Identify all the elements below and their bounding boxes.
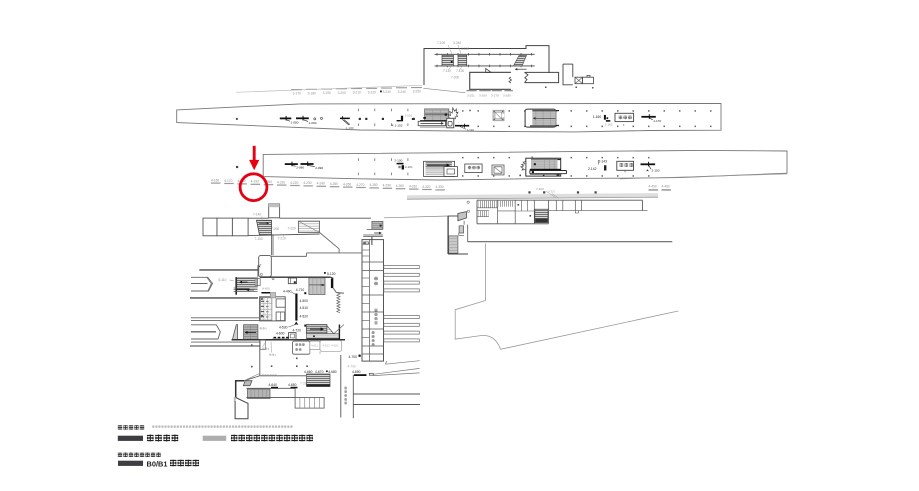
svg-text:4-260: 4-260 — [343, 182, 351, 186]
svg-text:4-160: 4-160 — [211, 178, 219, 182]
svg-text:3-190: 3-190 — [323, 91, 331, 95]
svg-text:1: 1 — [275, 353, 277, 357]
svg-text:3-230: 3-230 — [383, 90, 391, 94]
svg-text:4-700: 4-700 — [348, 364, 356, 368]
svg-text:5-110: 5-110 — [219, 278, 227, 282]
svg-text:1-170: 1-170 — [653, 119, 661, 123]
svg-text:2-142: 2-142 — [588, 167, 597, 171]
svg-text:4-510: 4-510 — [300, 306, 309, 310]
svg-text:4-330: 4-330 — [435, 185, 443, 189]
svg-text:4-290: 4-290 — [383, 184, 391, 188]
svg-text:4-210: 4-210 — [277, 180, 285, 184]
svg-text:4-530: 4-530 — [279, 325, 288, 329]
svg-text:7-110: 7-110 — [443, 69, 451, 73]
svg-text:3-240: 3-240 — [398, 90, 406, 94]
svg-text:3-251: 3-251 — [467, 93, 475, 97]
svg-text:7-210: 7-210 — [278, 236, 286, 240]
svg-text:3-270: 3-270 — [491, 93, 499, 97]
svg-text:1-100: 1-100 — [346, 126, 354, 130]
svg-text:4-250: 4-250 — [330, 182, 338, 186]
svg-text:7-130: 7-130 — [456, 69, 464, 73]
svg-text:4-710: 4-710 — [296, 288, 305, 292]
svg-text:4-500: 4-500 — [300, 299, 309, 303]
svg-text:4-270: 4-270 — [356, 183, 364, 187]
svg-text:(4-485): (4-485) — [262, 288, 270, 291]
svg-text:2-100: 2-100 — [394, 158, 402, 162]
svg-text:5-120: 5-120 — [327, 272, 336, 276]
svg-text:B0/B1: B0/B1 — [147, 459, 168, 468]
svg-text:4-450: 4-450 — [649, 185, 657, 189]
svg-text:4-640: 4-640 — [269, 383, 278, 387]
svg-text:2-150: 2-150 — [652, 169, 660, 173]
svg-text:1-110: 1-110 — [467, 128, 475, 132]
svg-text:3-200: 3-200 — [338, 91, 346, 95]
svg-text:1-090: 1-090 — [309, 121, 317, 125]
svg-text:4-690: 4-690 — [352, 370, 361, 374]
svg-text:7-300: 7-300 — [536, 187, 544, 191]
svg-text:4-240: 4-240 — [317, 182, 325, 186]
svg-text:3-240: 3-240 — [453, 41, 461, 45]
svg-text:3-210: 3-210 — [353, 91, 361, 95]
svg-text:7-200: 7-200 — [271, 227, 279, 231]
svg-text:4-460: 4-460 — [662, 185, 670, 189]
svg-text:4-170: 4-170 — [224, 179, 232, 183]
svg-text:4-490: 4-490 — [283, 290, 292, 294]
svg-text:1-102: 1-102 — [395, 124, 403, 128]
svg-text:4-230: 4-230 — [303, 181, 311, 185]
svg-text:3-280: 3-280 — [503, 93, 511, 97]
svg-text:4: 4 — [265, 326, 267, 330]
svg-text:1-101: 1-101 — [405, 113, 413, 117]
svg-text:7-150: 7-150 — [255, 237, 263, 241]
svg-text:7-140: 7-140 — [253, 213, 261, 217]
svg-text:3-120: 3-120 — [461, 47, 469, 51]
svg-text:3-180: 3-180 — [308, 91, 316, 95]
svg-text:3: 3 — [268, 347, 270, 351]
svg-text:3-260: 3-260 — [479, 93, 487, 97]
svg-text:2-090: 2-090 — [315, 166, 323, 170]
svg-text:4-600: 4-600 — [276, 332, 285, 336]
svg-text:3-220: 3-220 — [368, 90, 376, 94]
svg-text:4-660: 4-660 — [304, 370, 313, 374]
svg-text:1-162: 1-162 — [605, 122, 613, 126]
svg-text:2-143: 2-143 — [599, 160, 608, 164]
svg-text:2-080: 2-080 — [296, 166, 304, 170]
svg-text:4-700: 4-700 — [349, 355, 358, 359]
svg-text:4-670: 4-670 — [315, 370, 324, 374]
svg-text:4-650: 4-650 — [288, 383, 297, 387]
svg-text:7-100: 7-100 — [437, 41, 445, 45]
svg-text:7-220: 7-220 — [288, 226, 296, 230]
svg-text:3-170: 3-170 — [293, 92, 301, 96]
svg-text:4-620: 4-620 — [331, 343, 339, 347]
svg-text:4-300: 4-300 — [396, 184, 404, 188]
svg-text:4-220: 4-220 — [290, 181, 298, 185]
svg-text:(A-04): (A-04) — [277, 374, 283, 377]
svg-text:1-160: 1-160 — [593, 115, 602, 119]
svg-text:4-720: 4-720 — [293, 328, 302, 332]
svg-text:2-101: 2-101 — [405, 165, 413, 169]
svg-text:4-611: 4-611 — [311, 343, 318, 347]
svg-text:4-680: 4-680 — [328, 370, 337, 374]
svg-text:4-190: 4-190 — [251, 180, 259, 184]
svg-text:4-310: 4-310 — [409, 184, 417, 188]
svg-text:1-080: 1-080 — [291, 121, 299, 125]
svg-text:4-320: 4-320 — [422, 185, 430, 189]
svg-text:4-280: 4-280 — [369, 183, 377, 187]
svg-text:4-612: 4-612 — [323, 343, 331, 347]
svg-text:3-250: 3-250 — [413, 90, 421, 94]
svg-text:7-200: 7-200 — [451, 76, 459, 80]
svg-text:4-520: 4-520 — [300, 314, 309, 318]
